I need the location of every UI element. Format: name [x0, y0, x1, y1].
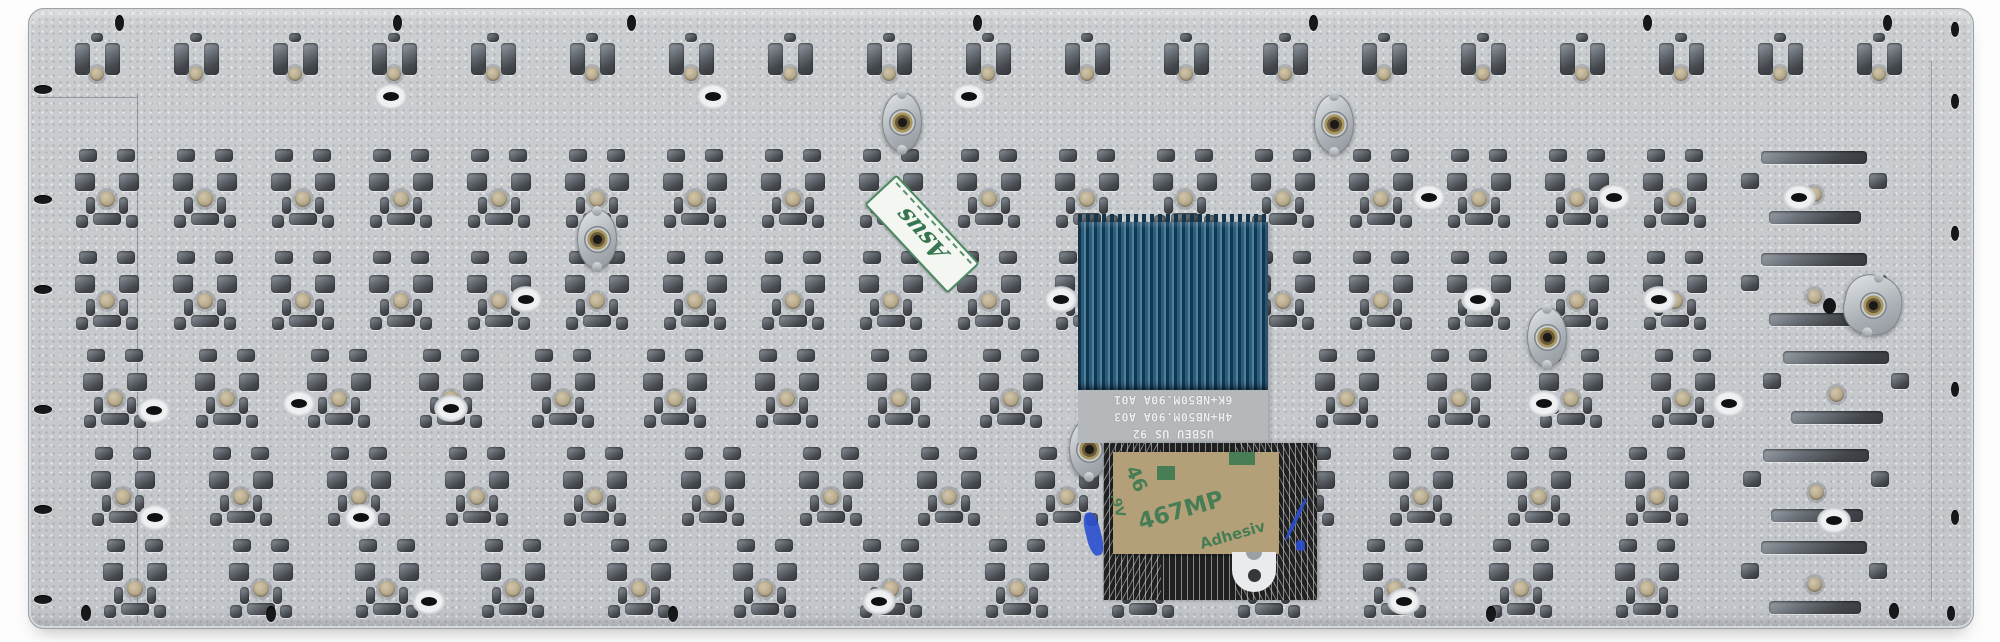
stamped-cutout — [213, 447, 231, 460]
stamped-cutout — [1489, 251, 1507, 264]
key-mount-cluster — [461, 31, 525, 105]
stamped-cutout — [273, 563, 293, 581]
ringed-hole-center — [518, 295, 534, 304]
stamped-cutout — [903, 587, 912, 604]
stamped-cutout — [859, 173, 879, 191]
stamped-cutout — [126, 215, 138, 228]
stamped-cutout — [1539, 373, 1559, 391]
ringed-hole-center — [1053, 295, 1069, 304]
stamped-cutout — [812, 317, 824, 330]
stamped-cutout — [707, 173, 727, 191]
key-mount-cluster — [529, 349, 597, 429]
stamped-cutout — [119, 299, 128, 316]
membrane-dome — [1829, 387, 1844, 402]
stamped-cutout — [1687, 197, 1696, 214]
stamped-cutout — [1741, 563, 1759, 579]
stamped-cutout — [609, 197, 618, 214]
stamped-cutout — [271, 275, 291, 293]
stamped-cutout — [756, 415, 768, 428]
stamped-cutout — [325, 413, 353, 425]
stamped-cutout — [1633, 603, 1661, 615]
stamped-cutout — [1689, 43, 1704, 75]
stamped-cutout — [191, 213, 219, 225]
stamped-cutout — [1498, 215, 1510, 228]
membrane-dome — [1373, 191, 1389, 207]
stamped-cutout — [1761, 253, 1867, 266]
stamped-cutout — [805, 275, 825, 293]
stamped-cutout — [910, 317, 922, 330]
stamped-cutout — [762, 215, 774, 228]
membrane-dome — [631, 581, 647, 597]
membrane-dome — [486, 67, 500, 81]
stamped-cutout — [511, 197, 520, 214]
membrane-dome — [505, 581, 521, 597]
stamped-cutout — [1857, 43, 1872, 75]
stamped-cutout — [867, 43, 882, 75]
stamped-cutout — [174, 215, 186, 228]
stamped-cutout — [755, 373, 775, 391]
stamped-cutout — [1491, 173, 1511, 191]
stamped-cutout — [1545, 275, 1565, 293]
stamped-cutout — [1551, 471, 1571, 489]
stamped-cutout — [1194, 43, 1209, 75]
stamped-cutout — [961, 495, 970, 512]
stamped-cutout — [76, 317, 88, 330]
key-mount-cluster — [269, 149, 337, 229]
stamped-cutout — [1551, 495, 1560, 512]
stamped-cutout — [461, 349, 479, 362]
key-mount-cluster — [1425, 349, 1493, 429]
stamped-cutout — [1391, 149, 1409, 162]
stamped-cutout — [1669, 471, 1689, 489]
stamped-cutout — [1153, 173, 1173, 191]
stamped-cutout — [903, 299, 912, 316]
stamped-cutout — [253, 471, 273, 489]
key-mount-cluster — [193, 349, 261, 429]
stamped-cutout — [75, 173, 95, 191]
stamped-cutout — [420, 317, 432, 330]
stamped-cutout — [1059, 149, 1077, 162]
key-mount-cluster — [65, 31, 129, 105]
membrane-dome — [1009, 581, 1025, 597]
stamped-cutout — [1362, 43, 1377, 75]
stamped-cutout — [651, 587, 660, 604]
stamped-cutout — [1029, 587, 1038, 604]
membrane-dome — [331, 391, 347, 407]
stamped-cutout — [370, 215, 382, 228]
key-mount-cluster — [1253, 31, 1317, 105]
key-mount-cluster — [1649, 349, 1717, 429]
stamped-cutout — [1546, 215, 1558, 228]
stamped-cutout — [1626, 587, 1635, 604]
stamped-cutout — [674, 197, 683, 214]
stamped-cutout — [1097, 149, 1115, 162]
stamped-cutout — [399, 563, 419, 581]
edge-hole-top — [973, 15, 982, 31]
key-mount-cluster — [679, 447, 747, 527]
stamped-cutout — [1615, 563, 1635, 581]
stamped-cutout — [94, 397, 103, 414]
stamped-cutout — [1023, 373, 1043, 391]
stamped-cutout — [402, 43, 417, 75]
stamped-cutout — [570, 43, 585, 75]
stamped-cutout — [569, 149, 587, 162]
stamped-cutout — [380, 197, 389, 214]
stamped-cutout — [237, 349, 255, 362]
ringed-hole-center — [961, 92, 977, 101]
stamped-cutout — [358, 415, 370, 428]
key-mount-cluster — [1748, 31, 1812, 105]
stamped-cutout — [135, 471, 155, 489]
stamped-cutout — [487, 33, 499, 42]
stamped-cutout — [1783, 351, 1889, 364]
stamped-cutout — [607, 495, 616, 512]
stamped-cutout — [911, 373, 931, 391]
stamped-cutout — [102, 495, 111, 512]
stamped-cutout — [1652, 415, 1664, 428]
stamped-cutout — [744, 587, 753, 604]
stamped-cutout — [1531, 539, 1549, 552]
stamped-cutout — [885, 413, 913, 425]
stamped-cutout — [1774, 33, 1786, 42]
stamped-cutout — [582, 415, 594, 428]
membrane-dome — [127, 581, 143, 597]
key-mount-cluster — [1741, 447, 1891, 525]
stamped-cutout — [1643, 511, 1671, 523]
membrane-dome — [757, 581, 773, 597]
stamped-cutout — [1489, 563, 1509, 581]
stamped-cutout — [1407, 511, 1435, 523]
stamped-cutout — [86, 197, 95, 214]
stamped-cutout — [669, 43, 684, 75]
stamped-cutout — [196, 415, 208, 428]
stamped-cutout — [1367, 213, 1395, 225]
stamped-cutout — [272, 317, 284, 330]
stamped-cutout — [133, 447, 151, 460]
key-mount-cluster — [353, 539, 421, 619]
stamped-cutout — [1644, 215, 1656, 228]
stamped-cutout — [1293, 43, 1308, 75]
key-mount-cluster — [1847, 31, 1911, 105]
stamped-cutout — [574, 495, 583, 512]
stamped-cutout — [125, 349, 143, 362]
stamped-cutout — [968, 197, 977, 214]
stamped-cutout — [1685, 149, 1703, 162]
membrane-dome — [1278, 67, 1292, 81]
key-mount-cluster — [865, 349, 933, 429]
screw-boss-tab — [1329, 91, 1339, 101]
key-mount-cluster — [1445, 149, 1513, 229]
stamped-cutout — [714, 215, 726, 228]
stamped-cutout — [315, 173, 335, 191]
stamped-cutout — [104, 605, 116, 618]
stamped-cutout — [1360, 299, 1369, 316]
stamped-cutout — [616, 215, 628, 228]
stamped-cutout — [532, 605, 544, 618]
stamped-cutout — [761, 173, 781, 191]
membrane-dome — [687, 293, 703, 309]
stamped-cutout — [968, 299, 977, 316]
stamped-cutout — [1741, 173, 1759, 189]
ringed-hole — [1527, 390, 1561, 417]
stamped-cutout — [413, 197, 422, 214]
stamped-cutout — [1036, 513, 1048, 526]
stamped-cutout — [1315, 471, 1335, 489]
key-mount-cluster — [227, 539, 295, 619]
stamped-cutout — [1761, 151, 1867, 164]
edge-hole-right — [1951, 510, 1959, 525]
ringed-hole — [1412, 184, 1446, 211]
ringed-hole-center — [383, 92, 399, 101]
stamped-cutout — [177, 149, 195, 162]
ringed-hole-center — [1606, 193, 1622, 202]
stamped-cutout — [213, 413, 241, 425]
stamped-cutout — [983, 349, 1001, 362]
plate-seam-line — [1931, 61, 1932, 601]
stamped-cutout — [903, 563, 923, 581]
stamped-cutout — [800, 513, 812, 526]
stamped-cutout — [609, 275, 629, 293]
stamped-cutout — [1295, 197, 1304, 214]
stamped-cutout — [1039, 447, 1057, 460]
stamped-cutout — [777, 563, 797, 581]
stamped-cutout — [190, 33, 202, 42]
edge-hole-top — [1883, 15, 1892, 31]
stamped-cutout — [1357, 349, 1375, 362]
stamped-cutout — [1262, 197, 1271, 214]
membrane-dome — [684, 67, 698, 81]
stamped-cutout — [1491, 197, 1500, 214]
stamped-cutout — [206, 397, 215, 414]
ringed-hole — [862, 588, 896, 615]
stamped-cutout — [525, 563, 545, 581]
stamped-cutout — [1129, 603, 1157, 615]
stamped-cutout — [1001, 275, 1021, 293]
stamped-cutout — [315, 275, 335, 293]
ribbon-cable-pleated-section — [1078, 222, 1268, 390]
stamped-cutout — [1400, 317, 1412, 330]
stamped-cutout — [921, 447, 939, 460]
ringed-hole-center — [1470, 295, 1486, 304]
ringed-hole-center — [421, 597, 437, 606]
stamped-cutout — [607, 471, 627, 489]
stamped-cutout — [76, 215, 88, 228]
key-mount-cluster — [1451, 31, 1515, 105]
stamped-cutout — [806, 415, 818, 428]
membrane-dome — [555, 391, 571, 407]
edge-hole-left — [34, 505, 52, 514]
stamped-cutout — [1498, 317, 1510, 330]
stamped-cutout — [605, 447, 623, 460]
stamped-cutout — [1659, 587, 1668, 604]
key-mount-cluster — [641, 349, 709, 429]
ringed-hole-center — [1421, 193, 1437, 202]
stamped-cutout — [1619, 539, 1637, 552]
stamped-cutout — [779, 315, 807, 327]
stamped-cutout — [1763, 373, 1781, 389]
stamped-cutout — [644, 415, 656, 428]
key-mount-cluster — [915, 447, 983, 527]
stamped-cutout — [607, 563, 627, 581]
stamped-cutout — [664, 317, 676, 330]
stamped-cutout — [1431, 349, 1449, 362]
stamped-cutout — [1359, 397, 1368, 414]
stamped-cutout — [127, 373, 147, 391]
stamped-cutout — [84, 415, 96, 428]
stamped-cutout — [509, 149, 527, 162]
stamped-cutout — [468, 215, 480, 228]
stamped-cutout — [705, 149, 723, 162]
stamped-cutout — [765, 149, 783, 162]
stamped-cutout — [928, 495, 937, 512]
membrane-dome — [587, 489, 603, 505]
stamped-cutout — [1763, 449, 1869, 462]
stamped-cutout — [860, 317, 872, 330]
membrane-dome — [219, 391, 235, 407]
membrane-dome — [1569, 293, 1585, 309]
stamped-cutout — [1027, 539, 1045, 552]
membrane-dome — [1373, 293, 1389, 309]
membrane-dome — [288, 67, 302, 81]
stamped-cutout — [1887, 43, 1902, 75]
stamped-cutout — [870, 299, 879, 316]
stamped-cutout — [1589, 299, 1598, 316]
edge-hole-right — [1951, 22, 1959, 37]
stamped-cutout — [532, 415, 544, 428]
stamped-cutout — [1471, 397, 1480, 414]
stamped-cutout — [1477, 33, 1489, 42]
stamped-cutout — [215, 251, 233, 264]
stamped-cutout — [799, 397, 808, 414]
stamped-cutout — [289, 315, 317, 327]
stamped-cutout — [663, 173, 683, 191]
stamped-cutout — [859, 275, 879, 293]
cable-alignment-hole — [1248, 569, 1261, 582]
membrane-dome — [1476, 67, 1490, 81]
stamped-cutout — [470, 415, 482, 428]
stamped-cutout — [576, 197, 585, 214]
ringed-hole — [952, 83, 986, 110]
stamped-cutout — [663, 275, 683, 293]
stamped-cutout — [318, 397, 327, 414]
membrane-dome — [1079, 191, 1095, 207]
membrane-dome — [705, 489, 721, 505]
stamped-cutout — [1651, 373, 1671, 391]
stamped-cutout — [1008, 317, 1020, 330]
stamped-cutout — [1288, 605, 1300, 618]
screw-boss-core — [1857, 289, 1889, 321]
stamped-cutout — [1353, 251, 1371, 264]
stamped-cutout — [233, 539, 251, 552]
stamped-cutout — [119, 275, 139, 293]
stamped-cutout — [1393, 197, 1402, 214]
stamped-cutout — [779, 213, 807, 225]
stamped-cutout — [654, 397, 663, 414]
stamped-cutout — [909, 349, 927, 362]
stamped-cutout — [797, 349, 815, 362]
stamped-cutout — [1507, 471, 1527, 489]
edge-hole-top — [627, 15, 636, 31]
stamped-cutout — [204, 43, 219, 75]
stamped-cutout — [366, 587, 375, 604]
stamped-cutout — [772, 299, 781, 316]
stamped-cutout — [608, 605, 620, 618]
screw-boss — [882, 92, 922, 152]
stamped-cutout — [449, 447, 467, 460]
membrane-dome — [1639, 581, 1655, 597]
ringed-hole — [434, 395, 468, 422]
stamped-cutout — [91, 471, 111, 489]
stamped-cutout — [1659, 563, 1679, 581]
stamped-cutout — [273, 43, 288, 75]
ringed-hole-center — [1791, 193, 1807, 202]
stamped-cutout — [1657, 539, 1675, 552]
stamped-cutout — [798, 43, 813, 75]
stamped-cutout — [1491, 43, 1506, 75]
stamped-cutout — [308, 415, 320, 428]
stamped-cutout — [1162, 605, 1174, 618]
stamped-cutout — [485, 539, 503, 552]
stamped-cutout — [92, 513, 104, 526]
key-mount-cluster — [1739, 149, 1889, 227]
stamped-cutout — [282, 197, 291, 214]
stamped-cutout — [1046, 495, 1055, 512]
stamped-cutout — [496, 513, 508, 526]
stamped-cutout — [986, 605, 998, 618]
key-mount-cluster — [731, 539, 799, 619]
stamped-cutout — [766, 397, 775, 414]
stamped-cutout — [373, 251, 391, 264]
edge-hole-bottom — [1486, 606, 1496, 622]
stamped-cutout — [566, 215, 578, 228]
stamped-cutout — [220, 495, 229, 512]
stamped-cutout — [1540, 605, 1552, 618]
cable-alignment-notch-cap — [1246, 552, 1262, 560]
stamped-cutout — [935, 511, 963, 523]
stamped-cutout — [307, 373, 327, 391]
stamped-cutout — [542, 397, 551, 414]
ringed-hole-center — [443, 404, 459, 413]
key-mount-cluster — [73, 251, 141, 331]
stamped-cutout — [1333, 413, 1361, 425]
stamped-cutout — [103, 563, 123, 581]
stamped-cutout — [980, 415, 992, 428]
membrane-dome — [1563, 391, 1579, 407]
stamped-cutout — [1407, 563, 1427, 581]
stamped-cutout — [996, 43, 1011, 75]
stamped-cutout — [910, 605, 922, 618]
key-mount-cluster — [443, 447, 511, 527]
stamped-cutout — [280, 605, 292, 618]
stamped-cutout — [75, 275, 95, 293]
membrane-dome — [1377, 67, 1391, 81]
stamped-cutout — [114, 587, 123, 604]
stamped-cutout — [1873, 33, 1885, 42]
keyboard-backplate-photo: Asus 6K+NB50M.90A A01 4H+NB50M.90A A03 U… — [0, 0, 2000, 642]
ringed-hole-center — [1826, 516, 1842, 525]
stamped-cutout — [618, 587, 627, 604]
stamped-cutout — [117, 149, 135, 162]
ringed-hole-center — [1721, 399, 1737, 408]
stamped-cutout — [805, 299, 814, 316]
stamped-cutout — [707, 197, 716, 214]
stamped-cutout — [961, 471, 981, 489]
stamped-cutout — [1596, 215, 1608, 228]
key-mount-cluster — [101, 539, 169, 619]
stamped-cutout — [75, 43, 90, 75]
stamped-cutout — [1471, 373, 1491, 391]
edge-hole-bottom — [266, 606, 276, 622]
